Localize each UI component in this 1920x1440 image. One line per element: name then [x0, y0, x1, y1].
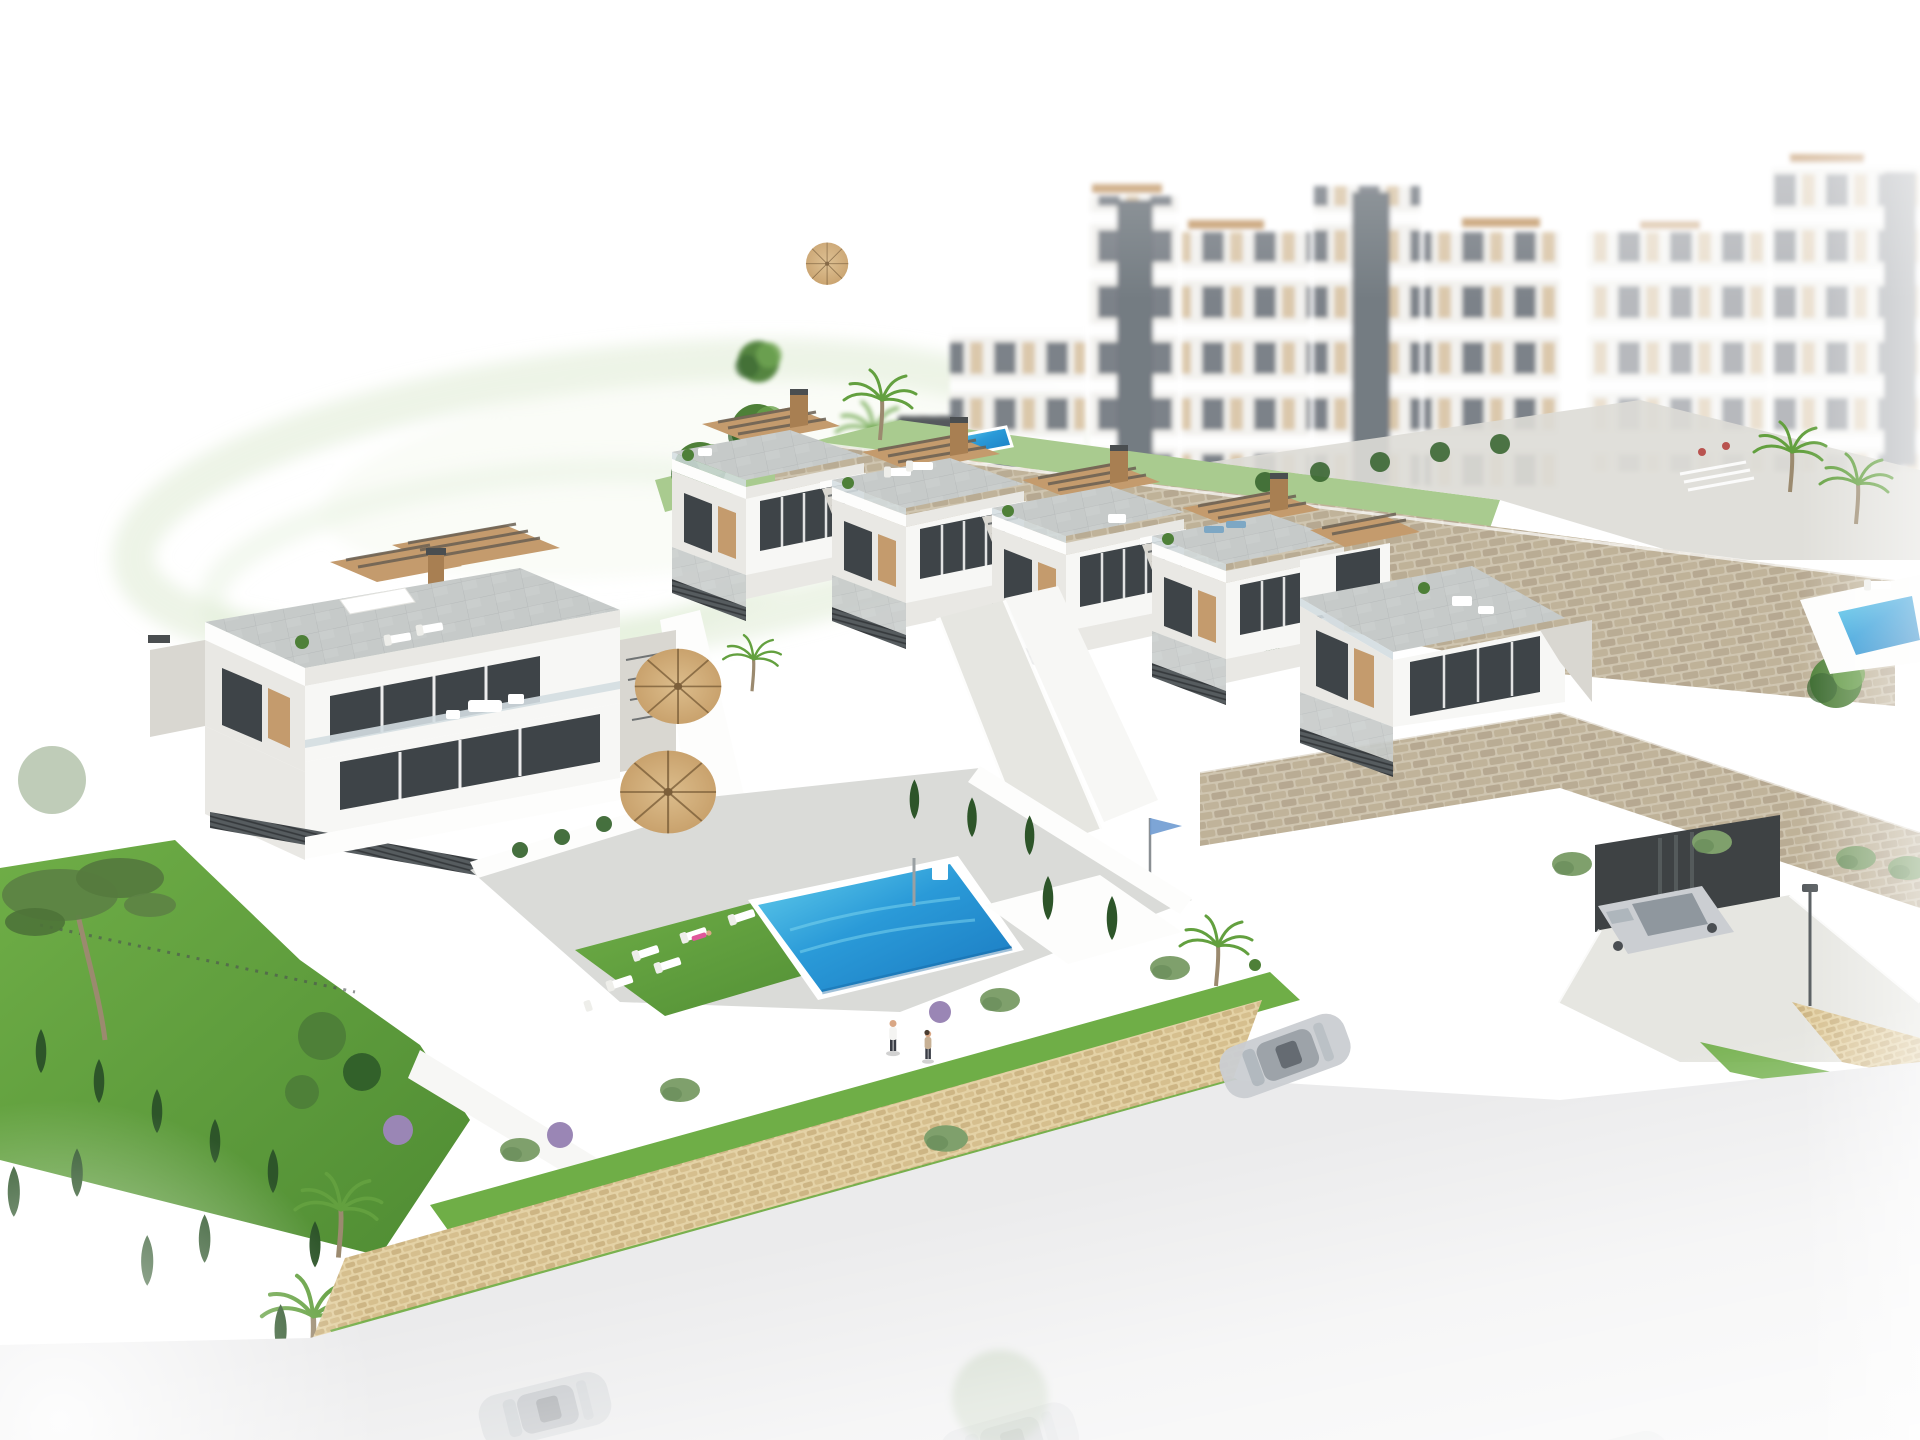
flowering-bush	[383, 1115, 413, 1145]
top-fade	[0, 0, 1920, 300]
potted-plant	[1249, 959, 1261, 971]
render-canvas	[0, 0, 1920, 1440]
flower-pot	[1698, 448, 1706, 456]
flower-pot	[1722, 442, 1730, 450]
flowering-bush	[547, 1122, 573, 1148]
terrace-chair	[1478, 606, 1494, 614]
potted-plant	[295, 635, 309, 649]
right-fade	[1800, 0, 1920, 1440]
wicker-parasol	[620, 751, 716, 834]
terrace-chair	[1452, 596, 1472, 606]
aerial-render-image	[0, 0, 1920, 1440]
wicker-parasol	[635, 649, 721, 724]
potted-plant	[1418, 582, 1430, 594]
hazy-tree	[18, 746, 86, 814]
flowering-bush	[929, 1001, 951, 1023]
